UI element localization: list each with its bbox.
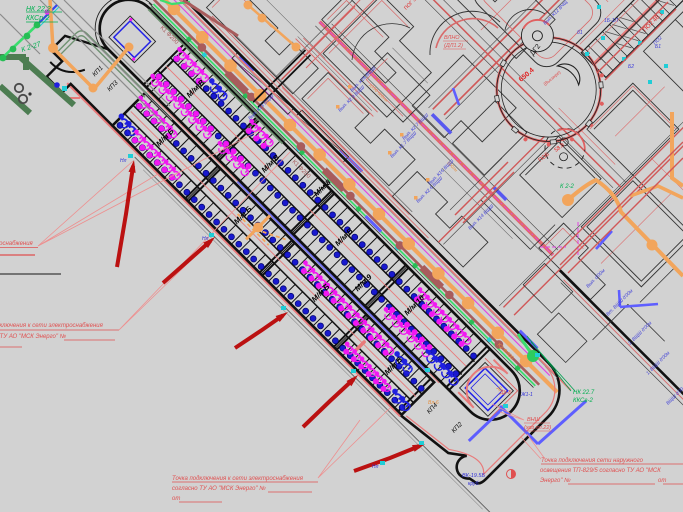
svg-text:1Б-1Л: 1Б-1Л [604,18,618,24]
svg-text:от: от [172,496,180,502]
svg-text:К 2-2: К 2-2 [560,184,575,190]
svg-text:ктроснабжения: ктроснабжения [0,241,34,247]
svg-text:от: от [658,478,666,484]
svg-text:согласно ТУ АО "МСК Энерго" №: согласно ТУ АО "МСК Энерго" № [172,485,266,492]
svg-text:Энерго" №: Энерго" № [540,477,571,484]
svg-text:Вл-6: Вл-6 [428,400,439,406]
svg-text:ВК-19.5Б: ВК-19.5Б [462,473,485,479]
svg-text:ДУ-Б: ДУ-Б [499,390,512,396]
svg-text:НК 22.7: НК 22.7 [573,390,595,396]
svg-text:дключения к сети электроснабже: дключения к сети электроснабжения [0,323,104,329]
svg-text:Нл: Нл [120,158,127,164]
svg-text:ВНШ: ВНШ [527,417,541,423]
svg-text:круб: круб [468,481,479,487]
svg-text:Точка подключения сети наружно: Точка подключения сети наружного [541,458,644,464]
svg-text:(хоз.пл.22): (хоз.пл.22) [524,425,551,431]
svg-text:б1: б1 [577,30,583,36]
svg-text:Нл: Нл [202,236,209,242]
svg-text:ККСр-2: ККСр-2 [26,15,49,22]
svg-text:ВЛНО: ВЛНО [444,35,460,41]
svg-text:(ДЛ1.2): (ДЛ1.2) [444,43,463,49]
svg-text:Б2: Б2 [628,64,634,70]
svg-text:Нл: Нл [372,464,379,470]
svg-text:- ТУ АО "МСК Энерго" №: - ТУ АО "МСК Энерго" № [0,333,67,340]
svg-text:освещения ТП-829/5 согласно ТУ: освещения ТП-829/5 согласно ТУ АО "МСК [540,468,661,474]
svg-text:Ж1-1: Ж1-1 [520,392,533,398]
svg-text:ККСв-2: ККСв-2 [573,398,593,404]
svg-text:Точка подключения к сети элект: Точка подключения к сети электроснабжени… [172,476,304,482]
